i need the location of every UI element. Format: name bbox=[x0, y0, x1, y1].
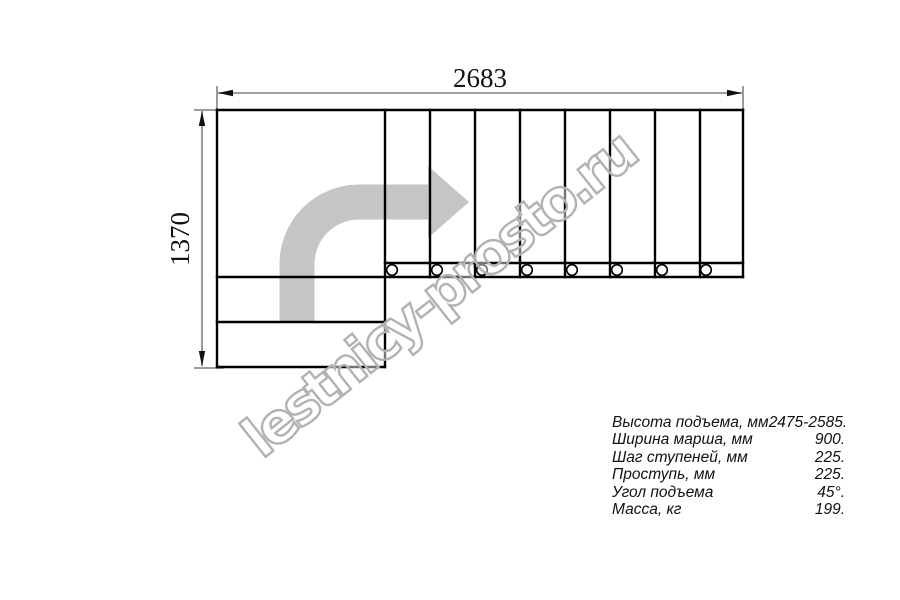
spec-label: Высота подъема, мм bbox=[612, 414, 769, 431]
top-dimension: 2683 bbox=[218, 63, 742, 96]
left-dimension-label: 1370 bbox=[165, 212, 195, 266]
spec-label: Ширина марша, мм bbox=[612, 431, 753, 448]
baluster-circle bbox=[387, 265, 398, 276]
baluster-circle bbox=[657, 265, 668, 276]
spec-row: Высота подъема, мм 2475-2585. bbox=[612, 414, 845, 431]
baluster-circle bbox=[567, 265, 578, 276]
spec-row: Проступь, мм 225. bbox=[612, 466, 845, 483]
specs-table: Высота подъема, мм 2475-2585. Ширина мар… bbox=[612, 414, 845, 518]
spec-row: Угол подъема 45°. bbox=[612, 484, 845, 501]
baluster-circle bbox=[701, 265, 712, 276]
spec-row: Ширина марша, мм 900. bbox=[612, 431, 845, 448]
spec-label: Угол подъема bbox=[612, 484, 713, 501]
spec-value: 900. bbox=[815, 431, 845, 448]
dimension-arrowhead-left-icon bbox=[218, 90, 233, 96]
spec-label: Проступь, мм bbox=[612, 466, 715, 483]
dimension-arrowhead-up-icon bbox=[199, 111, 205, 126]
dimension-arrowhead-right-icon bbox=[727, 90, 742, 96]
stair-plan-page: 2683 1370 bbox=[0, 0, 900, 600]
dimension-arrowhead-down-icon bbox=[199, 351, 205, 366]
spec-value: 2475-2585. bbox=[769, 414, 847, 431]
top-dimension-label: 2683 bbox=[453, 63, 507, 93]
spec-row: Шаг ступеней, мм 225. bbox=[612, 449, 845, 466]
left-dimension: 1370 bbox=[165, 111, 205, 366]
baluster-circle bbox=[612, 265, 623, 276]
dimension-extension-lines bbox=[194, 86, 743, 368]
spec-label: Масса, кг bbox=[612, 501, 681, 518]
spec-value: 225. bbox=[815, 466, 845, 483]
spec-value: 199. bbox=[815, 501, 845, 518]
spec-value: 45°. bbox=[817, 484, 845, 501]
spec-row: Масса, кг 199. bbox=[612, 501, 845, 518]
spec-value: 225. bbox=[815, 449, 845, 466]
spec-label: Шаг ступеней, мм bbox=[612, 449, 748, 466]
